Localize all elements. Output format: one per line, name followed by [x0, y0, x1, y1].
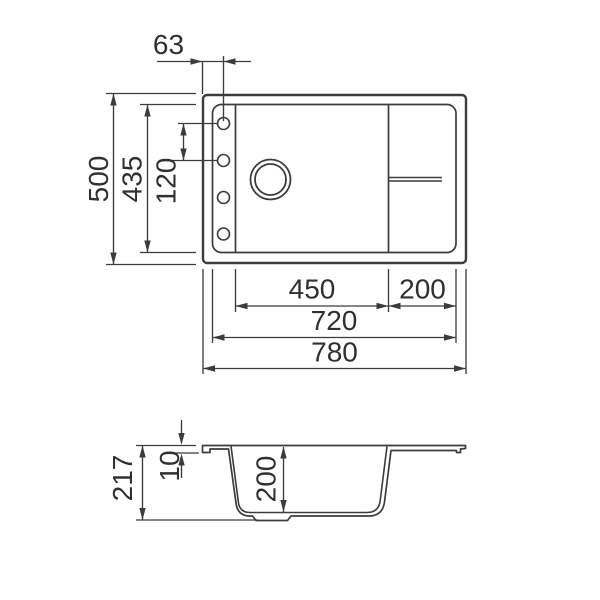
dim-label-hole-offset: 63: [153, 29, 184, 60]
section-view: 217 10 200: [107, 420, 466, 521]
dim-label-overall-width: 780: [311, 337, 358, 368]
arrowhead: [178, 433, 184, 445]
dim-width-rows: 450 200 720 780: [203, 269, 466, 374]
dim-label-overall-depth: 500: [83, 156, 114, 203]
faucet-hole-4: [218, 228, 230, 240]
sink-outer-rim: [203, 95, 466, 263]
dim-bowl-depth: 200: [250, 447, 286, 513]
arrowhead: [444, 334, 456, 340]
top-view: 63 500 435 120: [83, 29, 466, 374]
dim-label-bowl-width: 450: [289, 274, 336, 305]
drain-inner-circle: [255, 164, 286, 195]
dim-label-hole-spacing: 120: [150, 158, 181, 205]
arrowhead: [213, 334, 225, 340]
arrowhead: [139, 508, 145, 520]
sink-inner-rim: [213, 105, 457, 253]
arrowhead: [377, 303, 389, 309]
arrowhead: [203, 365, 215, 371]
dim-label-rim-thickness: 10: [154, 450, 185, 481]
arrowhead: [224, 58, 236, 64]
dim-hole-spacing: 120: [150, 124, 217, 205]
faucet-holes: [218, 118, 230, 241]
arrowhead: [236, 303, 248, 309]
faucet-hole-2: [218, 155, 230, 167]
dimension-drawing-page: 63 500 435 120: [0, 0, 600, 600]
arrowhead: [110, 94, 116, 106]
drainer-groove: [389, 178, 442, 182]
dim-label-drainer-width: 200: [399, 274, 446, 305]
arrowhead: [454, 365, 466, 371]
dim-rim-thickness: 10: [154, 420, 199, 482]
arrowhead: [110, 253, 116, 265]
dim-label-total-height: 217: [107, 455, 138, 502]
arrowhead: [144, 241, 150, 253]
arrowhead: [144, 105, 150, 117]
arrowhead: [191, 58, 203, 64]
sink-outline: [203, 95, 466, 263]
technical-drawing: 63 500 435 120: [0, 0, 600, 600]
dim-label-inner-depth: 435: [116, 156, 147, 203]
dim-label-inner-width: 720: [311, 305, 358, 336]
drain: [251, 160, 291, 200]
dim-label-bowl-depth: 200: [250, 456, 281, 503]
arrowhead: [180, 124, 186, 136]
drain-outer-circle: [251, 160, 291, 200]
faucet-hole-3: [218, 192, 230, 204]
arrowhead: [139, 446, 145, 458]
